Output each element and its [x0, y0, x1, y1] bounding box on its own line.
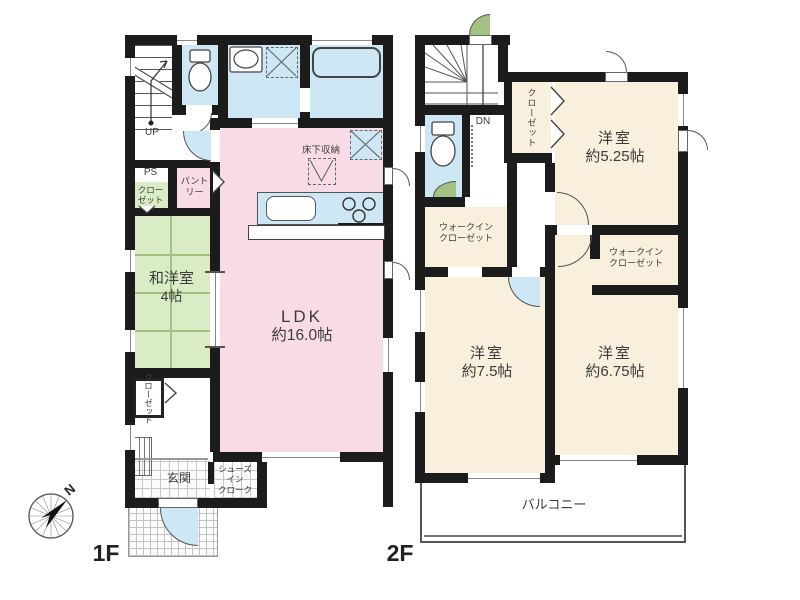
washer-pan [266, 47, 298, 78]
balcony-inner-line [424, 535, 682, 537]
wall [172, 35, 182, 115]
room-525-line2: 約5.25帖 [585, 148, 644, 166]
folding-door-icon [212, 170, 226, 194]
balcony-label: バルコニー [498, 496, 610, 514]
sic-line3: クローク [218, 485, 252, 496]
floor-label-2f: 2F [376, 540, 424, 568]
window [177, 35, 197, 45]
wall [545, 163, 555, 192]
pantry-label: パントリー [175, 168, 214, 206]
wic-right-line2: クローゼット [609, 258, 663, 269]
window [678, 308, 688, 388]
genkan-label: 玄関 [150, 470, 208, 486]
wall [592, 225, 688, 235]
room-675-line2: 約6.75帖 [585, 363, 644, 381]
wall [507, 153, 517, 267]
closet-text-2f: クローゼット [526, 88, 537, 148]
window [468, 473, 540, 483]
door-leaf [678, 130, 688, 152]
stair-opening-rail [471, 125, 473, 167]
door-arc [183, 131, 211, 161]
floor-label-1f: 1F [84, 540, 128, 568]
stove-burners-icon [338, 194, 386, 224]
ps-closet-line2: ゼット [138, 195, 164, 205]
underfloor-text: 床下収納 [302, 145, 340, 156]
window [125, 330, 135, 352]
washitsu-label: 和洋室4帖 [133, 266, 210, 308]
door-arc [469, 14, 490, 35]
balcony-text: バルコニー [522, 497, 587, 513]
entrance-door-leaf [158, 498, 198, 508]
window [415, 382, 425, 412]
wall [545, 225, 557, 235]
sic-label: シューズインクローク [211, 462, 259, 497]
wall [415, 35, 510, 45]
stairs-up-label: UP [133, 126, 171, 140]
wall [498, 72, 688, 82]
door-arc [393, 168, 410, 186]
v-mark-icon [309, 159, 334, 183]
floorplan-canvas: UP PS クローゼット パントリー 和洋室4帖 LDK約16.0帖 床下収納 … [0, 0, 800, 600]
door-arc [393, 262, 410, 280]
ps-text: PS [144, 167, 157, 179]
stairs-up-text: UP [145, 127, 159, 139]
ldk-label: LDK約16.0帖 [240, 304, 364, 348]
sliding-opening [252, 118, 298, 128]
window [678, 94, 688, 126]
door-arc [606, 51, 627, 72]
kitchen-counter-panel [248, 225, 385, 240]
wall [415, 35, 425, 483]
room-675-label: 洋室約6.75帖 [556, 340, 674, 386]
wall [125, 368, 220, 378]
room-525-label: 洋室約5.25帖 [556, 126, 674, 170]
room-75-line1: 洋室 [470, 345, 504, 363]
genkan-text: 玄関 [167, 471, 191, 485]
room-525-line1: 洋室 [598, 130, 632, 148]
closet-label-2f: クローゼット [514, 86, 548, 150]
stairs-1f [133, 45, 172, 130]
wall [415, 197, 465, 207]
wic-left-line2: クローゼット [439, 233, 493, 244]
door-leaf [605, 72, 628, 82]
door-leaf [384, 261, 393, 279]
genkan-step-line [133, 458, 208, 460]
window [125, 425, 135, 450]
toilet-icon [186, 48, 214, 94]
sliding-door [210, 272, 220, 348]
stairs-dn-label: DN [464, 115, 502, 129]
wall [504, 72, 512, 153]
wic-right-line1: ウォークイン [609, 247, 663, 258]
room-675-line1: 洋室 [598, 345, 632, 363]
pantry-line1: パント [181, 176, 208, 187]
toilet-icon [428, 120, 458, 168]
stairs-dn-text: DN [476, 116, 490, 128]
north-text: N [61, 481, 78, 499]
tatami-line [133, 330, 210, 332]
bathtub-icon [312, 47, 381, 78]
pantry-line2: リー [185, 187, 203, 198]
wic-left-line1: ウォークイン [439, 222, 493, 233]
underfloor-label: 床下収納 [284, 144, 358, 157]
room-75-label: 洋室約7.5帖 [432, 340, 542, 386]
tatami-line [133, 254, 210, 256]
room-75-line2: 約7.5帖 [462, 363, 513, 381]
floor-text-1f: 1F [93, 540, 120, 568]
window [560, 455, 637, 465]
wall [592, 285, 688, 295]
washbasin-icon [229, 46, 263, 73]
closet-label-1f: クローゼット [134, 380, 162, 417]
window [415, 126, 425, 152]
wall [415, 267, 448, 277]
tick [205, 346, 225, 348]
window [312, 35, 372, 45]
sic-line1: シューズ [218, 464, 252, 475]
sic-line2: イン [226, 474, 243, 485]
door-leaf [384, 167, 393, 185]
door-opening [210, 130, 220, 162]
door-arc [688, 130, 708, 150]
folding-door-icon [164, 382, 178, 404]
closet-text-1f: クローゼット [142, 373, 155, 424]
ps-closet-label: クローゼット [131, 182, 170, 208]
washitsu-line2: 4帖 [161, 288, 183, 305]
door-leaf [469, 35, 492, 45]
wic-left-label: ウォークインクローゼット [424, 219, 508, 247]
wall [545, 225, 555, 483]
ps-closet-line1: クロー [138, 185, 164, 195]
floor-text-2f: 2F [387, 540, 414, 568]
bath-door-opening [300, 88, 310, 112]
kitchen-sink [266, 196, 316, 221]
ldk-line2: 約16.0帖 [271, 327, 332, 346]
window [262, 452, 340, 462]
room-ldk [220, 128, 383, 452]
window [415, 290, 425, 332]
window [125, 58, 135, 76]
ldk-line1: LDK [281, 307, 323, 327]
stairs-1f-marks [133, 45, 172, 130]
washitsu-line1: 和洋室 [149, 270, 194, 288]
x-mark-icon [267, 48, 296, 76]
ps-label: PS [133, 166, 168, 180]
wall [482, 267, 512, 277]
wic-right-label: ウォークインクローゼット [594, 244, 678, 272]
wall [210, 118, 393, 128]
window [383, 338, 393, 372]
wall [425, 105, 507, 115]
underfloor-storage-box [308, 158, 336, 185]
